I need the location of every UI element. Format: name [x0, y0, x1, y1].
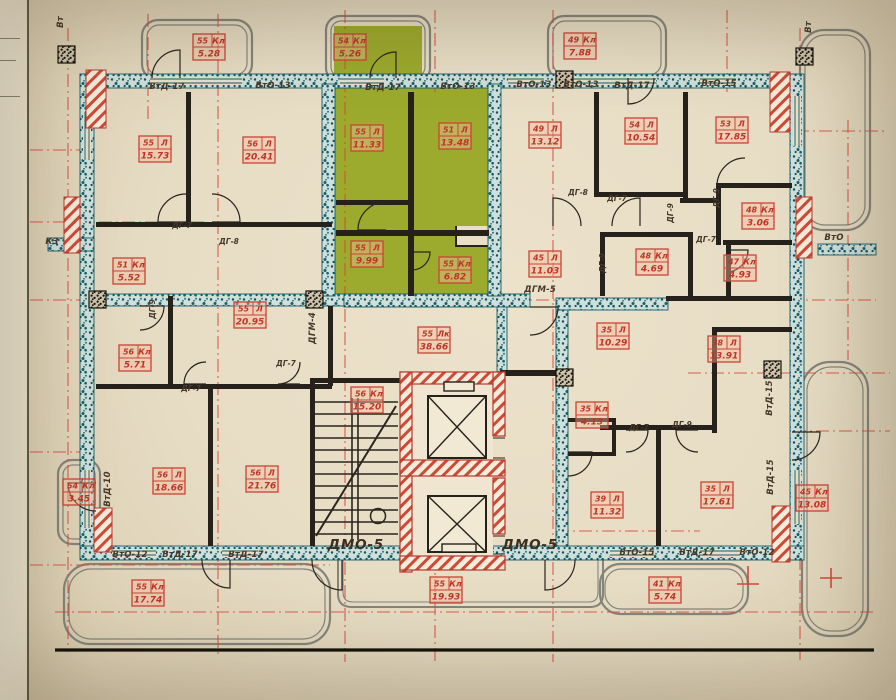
wall-mark-label: ВтД-17 [614, 81, 650, 91]
wall-mark-label-text: ВтО [824, 233, 843, 243]
room-area: 17.61 [703, 498, 731, 508]
door-mark-label-text: ДГ-7 [606, 194, 628, 203]
room-area: 18.66 [155, 484, 183, 494]
column-marker [764, 361, 781, 378]
room-area-label: 55Кл6.82 [439, 257, 471, 283]
room-type: Л [264, 140, 272, 149]
room-number: 41 [652, 580, 664, 589]
room-number: 55 [238, 305, 250, 314]
room-number: 56 [123, 348, 135, 357]
room-number: 55 [143, 139, 155, 148]
door-mark-label-text: ДГ-9 [148, 299, 157, 320]
room-area: 3.06 [747, 219, 769, 229]
room-area: 19.93 [432, 593, 460, 603]
room-number: 53 [720, 120, 732, 129]
wall-mark-label-text: ВтД-17 [365, 83, 401, 93]
room-area: 4.69 [640, 265, 663, 275]
room-type: Л [646, 121, 654, 130]
door-mark-label: ДГ-7 [628, 423, 650, 432]
stair-start-circle [371, 509, 386, 524]
room-number: 54 [67, 482, 79, 491]
room-area: 13.91 [710, 352, 738, 362]
wall-mark-label-text: ВтО-13 [440, 82, 475, 92]
room-area: 5.28 [198, 50, 220, 60]
room-number: 55 [443, 260, 455, 269]
room-area-label: 47Кл4.93 [724, 255, 756, 281]
door-mark-label: ДГ-7 [606, 194, 628, 203]
floorplan-photo: 55Кл5.2854Кл5.2649Кл7.8855Л15.7356Л20.41… [0, 0, 896, 700]
room-type: Кл [815, 488, 828, 497]
room-type: Л [174, 471, 182, 480]
room-number: 56 [157, 471, 169, 480]
room-area: 15.20 [353, 403, 381, 413]
room-area: 11.32 [593, 508, 621, 518]
room-number: 48 [639, 252, 652, 261]
door-mark-label-text: ДГ-9 [671, 420, 692, 429]
door-mark-label: ДГ-9 [598, 253, 607, 274]
room-area: 3.45 [68, 495, 90, 505]
door-mark-label: ДГ-7 [275, 359, 297, 368]
room-number: 39 [595, 495, 607, 504]
room-area-label: 51Кл5.52 [113, 258, 145, 284]
door-mark-label: ДГ-9 [712, 188, 721, 209]
room-area: 5.52 [118, 274, 140, 284]
room-type: Кл [353, 37, 366, 46]
room-type: Л [267, 469, 275, 478]
door-mark-label-text: ДГ-9 [666, 203, 675, 224]
room-area-label: 55Л11.33 [351, 125, 383, 151]
room-area-label: 35Кл4.13 [576, 402, 608, 428]
room-area: 13.12 [531, 138, 559, 148]
room-area-label: 35Л10.29 [597, 323, 629, 349]
room-type: Кл [449, 580, 462, 589]
section-marks [737, 566, 842, 588]
wall-mark-label-text: Вт [804, 20, 814, 33]
room-area: 11.03 [531, 267, 559, 277]
door-mark-label: ДГ-8 [218, 237, 239, 246]
wall-mark-label-text: ВтД-17 [162, 550, 198, 560]
room-type: Л [372, 244, 380, 253]
balcony-loop [64, 564, 330, 644]
room-number: 35 [705, 485, 717, 494]
room-type: Л [618, 326, 626, 335]
room-number: 35 [601, 326, 613, 335]
wall-mark-label: ВтО-13 [516, 80, 551, 90]
room-area-label: 55Кл5.28 [193, 34, 225, 60]
shaft-wall [400, 556, 505, 570]
wall-mark-label: К3 [45, 237, 58, 247]
wall-mark-label-text: ВтД-15 [766, 459, 776, 495]
wall-mark-label-text: ВтД-17 [149, 82, 185, 92]
door-mark-label-text: ДГ-9 [598, 253, 607, 274]
room-area-label: 53Л17.85 [716, 117, 748, 143]
room-area-label: 56Кл15.20 [351, 387, 383, 413]
wall-mark-label-text: ВтО-13 [255, 81, 290, 91]
wall-mark-label-text: ВтД-15 [765, 380, 775, 416]
room-area-label: 56Л21.76 [246, 466, 278, 492]
room-type: Кл [458, 260, 471, 269]
room-area: 17.85 [718, 133, 746, 143]
wall-mark-label: ДГМ-5 [523, 285, 556, 295]
room-number: 56 [250, 469, 262, 478]
room-number: 48 [745, 206, 758, 215]
door-mark-label-text: ДГ-9 [712, 188, 721, 209]
room-number: 55 [422, 330, 434, 339]
wall-mark-label: ВтО-12 [739, 548, 774, 558]
room-area-label: 41Кл5.74 [649, 577, 681, 603]
room-area-label: 45Л11.03 [529, 251, 561, 277]
room-area: 13.48 [441, 139, 469, 149]
room-number: 49 [532, 125, 545, 134]
room-type: Кл [212, 37, 225, 46]
room-area-label: 51Л13.48 [439, 123, 471, 149]
shaft-wall [493, 478, 505, 534]
room-number: 45 [799, 488, 812, 497]
door-mark-label-text: ДГ-7 [628, 423, 650, 432]
door-mark-label: ДГ-9 [148, 299, 157, 320]
room-type: Кл [82, 482, 95, 491]
wall-mark-label-text: ВтО-13 [563, 80, 598, 90]
room-number: 51 [117, 261, 128, 270]
pier [796, 197, 812, 258]
wall-lobby-left [497, 307, 507, 374]
room-area-label: 39Л11.32 [591, 492, 623, 518]
room-number: 56 [355, 390, 367, 399]
room-area-label: 48Кл3.06 [742, 203, 774, 229]
room-type: Кл [743, 258, 756, 267]
wall-mark-label-text: ВтО-15 [619, 548, 654, 558]
door-mark-label-text: ДГ-7 [695, 235, 717, 244]
room-number: 45 [532, 254, 545, 263]
wall-mark-label-text: ВтД-17 [228, 550, 264, 560]
pier [64, 197, 80, 253]
wall-mark-label: ВтД-15 [766, 459, 776, 495]
room-type: Кл [583, 36, 596, 45]
wall-mark-label: ВтО-13 [563, 80, 598, 90]
window [793, 96, 801, 146]
room-type: Л [550, 254, 558, 263]
room-type: Л [160, 139, 168, 148]
room-number: 35 [580, 405, 592, 414]
wall-mark-label: ВтО [824, 233, 843, 243]
room-area-label: 38Л13.91 [708, 336, 740, 362]
wall-corridor-spine [344, 294, 530, 307]
room-number: 54 [338, 37, 350, 46]
wall-mark-label-text: ВтД-17 [679, 548, 715, 558]
wall-mark-label-text: ВтО-15 [701, 79, 736, 89]
wall-mark-label: ВтО-15 [701, 79, 736, 89]
door-mark-label-text: ДГ-8 [218, 237, 239, 246]
room-type: Кл [595, 405, 608, 414]
wall-mark-label: ВтД-10 [103, 471, 113, 507]
room-type: Л [729, 339, 737, 348]
floor-plan-drawing: 55Кл5.2854Кл5.2649Кл7.8855Л15.7356Л20.41… [0, 0, 896, 700]
room-area: 13.08 [798, 501, 826, 511]
room-type: Кл [668, 580, 681, 589]
column-marker [89, 291, 106, 308]
wall-mark-label-text: ВтО-13 [516, 80, 551, 90]
wall-stub-vto [818, 244, 876, 255]
room-number: 55 [355, 128, 367, 137]
room-type: Кл [655, 252, 668, 261]
room-type: Л [372, 128, 380, 137]
door-mark-label: ДГ-9 [666, 203, 675, 224]
room-area: 38.66 [420, 343, 448, 353]
stair-unit-label: ДМО-5 [501, 537, 558, 553]
pier [772, 506, 790, 562]
wall-corridor-spine [556, 298, 668, 310]
room-area-label: 54Кл3.45 [63, 479, 95, 505]
column-marker [556, 369, 573, 386]
door-mark-label-text: ДГ-7 [275, 359, 297, 368]
room-area: 11.33 [353, 141, 381, 151]
wall-mark-label: ВтД-15 [765, 380, 775, 416]
room-area: 15.73 [141, 152, 169, 162]
pier [86, 70, 106, 128]
room-type: Л [722, 485, 730, 494]
stair-unit-label-text: ДМО-5 [501, 537, 558, 553]
shaft-wall [400, 460, 505, 476]
room-number: 38 [712, 339, 724, 348]
wall-mark-label: ВтО-13 [440, 82, 475, 92]
stair-unit-label: ДМО-5 [327, 537, 384, 553]
wall-mark-label-text: К3 [45, 237, 58, 247]
door-mark-label: ДГ-7 [180, 384, 202, 393]
room-area-label: 55Лк38.66 [418, 327, 450, 353]
room-number: 55 [197, 37, 209, 46]
room-area: 5.26 [339, 50, 361, 60]
room-area-label: 48Кл4.69 [636, 249, 668, 275]
room-area: 10.54 [627, 134, 655, 144]
wall-mark-label: ВтО-15 [619, 548, 654, 558]
room-area-label: 56Л18.66 [153, 468, 185, 494]
door-mark-label: ДГ-7 [695, 235, 717, 244]
room-area-label: 45Кл13.08 [796, 485, 828, 511]
room-type: Л [550, 125, 558, 134]
stairs [314, 398, 398, 540]
room-area: 7.88 [569, 49, 591, 59]
room-area-label: 55Кл17.74 [132, 580, 164, 606]
room-type: Кл [151, 583, 164, 592]
wall-lobby-right [556, 310, 568, 546]
door-mark-label-text: ДГ-7 [171, 221, 193, 230]
room-area-label: 56Кл5.71 [119, 345, 151, 371]
room-type: Кл [138, 348, 151, 357]
elevator-car [428, 496, 486, 552]
room-number: 55 [355, 244, 367, 253]
room-type: Кл [132, 261, 145, 270]
room-type: Л [255, 305, 263, 314]
wall-mark-label: Вт [56, 15, 66, 28]
wall-mark-label: Вт [804, 20, 814, 33]
wall-mark-label: ВтД-17 [149, 82, 185, 92]
wall-mark-label-text: ВтД-10 [103, 471, 113, 507]
room-number: 55 [136, 583, 148, 592]
wall-green-right [488, 84, 501, 296]
wall-mark-label-text: ВтО-12 [112, 550, 147, 560]
room-area-label: 55Л9.99 [351, 241, 383, 267]
wall-green-left [322, 84, 335, 296]
room-area-label: 35Л17.61 [701, 482, 733, 508]
room-number: 55 [434, 580, 446, 589]
room-type: Лк [436, 330, 450, 339]
pier [94, 508, 112, 552]
wall-mark-label-text: ВтО-12 [739, 548, 774, 558]
room-type: Л [460, 126, 468, 135]
room-area: 5.71 [124, 361, 146, 371]
room-area-label: 49Кл7.88 [564, 33, 596, 59]
room-area: 4.13 [580, 418, 603, 428]
pier [770, 72, 790, 132]
room-number: 47 [727, 258, 740, 267]
shaft-wall [493, 372, 505, 436]
wall-mark-label-text: Вт [56, 15, 66, 28]
room-area: 4.93 [728, 271, 751, 281]
room-area: 9.99 [356, 257, 378, 267]
room-area: 10.29 [599, 339, 627, 349]
room-area: 17.74 [134, 596, 162, 606]
room-area: 21.76 [248, 482, 276, 492]
door-mark-label: ДГ-7 [171, 221, 193, 230]
room-area: 6.82 [444, 273, 466, 283]
wall-mark-label: ДГМ-4 [308, 312, 318, 345]
wall-mark-label: ВтД-17 [365, 83, 401, 93]
room-number: 54 [629, 121, 641, 130]
column-marker [796, 48, 813, 65]
wall-mark-label: ВтД-17 [679, 548, 715, 558]
wall-mark-label: ВтД-17 [162, 550, 198, 560]
room-area-label: 49Л13.12 [529, 122, 561, 148]
door-mark-label-text: ДГ-8 [567, 188, 588, 197]
wall-mark-label: ВтД-17 [228, 550, 264, 560]
room-area-label: 55Кл19.93 [430, 577, 462, 603]
room-area-label: 56Л20.41 [243, 137, 275, 163]
door-mark-label: ДГ-9 [671, 420, 692, 429]
room-type: Кл [370, 390, 383, 399]
column-marker [58, 46, 75, 63]
room-type: Л [612, 495, 620, 504]
wall-mark-label: ВтО-13 [255, 81, 290, 91]
elevator-shaft [400, 372, 505, 572]
room-area-label: 55Л15.73 [139, 136, 171, 162]
room-area: 20.95 [236, 318, 264, 328]
room-type: Л [737, 120, 745, 129]
room-area: 5.74 [654, 593, 676, 603]
wall-mark-label-text: ВтД-17 [614, 81, 650, 91]
room-number: 56 [247, 140, 259, 149]
stair-unit-label-text: ДМО-5 [327, 537, 384, 553]
room-area-label: 55Л20.95 [234, 302, 266, 328]
room-type: Кл [761, 206, 774, 215]
room-area-label: 54Кл5.26 [334, 34, 366, 60]
room-number: 49 [567, 36, 580, 45]
room-number: 51 [443, 126, 454, 135]
wall-mark-label: ВтО-12 [112, 550, 147, 560]
door-mark-label-text: ДГ-7 [180, 384, 202, 393]
column-marker [306, 291, 323, 308]
room-area: 20.41 [245, 153, 273, 163]
door-mark-label: ДГ-8 [567, 188, 588, 197]
wall-mark-label-text: ДГМ-5 [523, 285, 556, 295]
room-area-label: 54Л10.54 [625, 118, 657, 144]
wall-mark-label-text: ДГМ-4 [308, 312, 318, 345]
